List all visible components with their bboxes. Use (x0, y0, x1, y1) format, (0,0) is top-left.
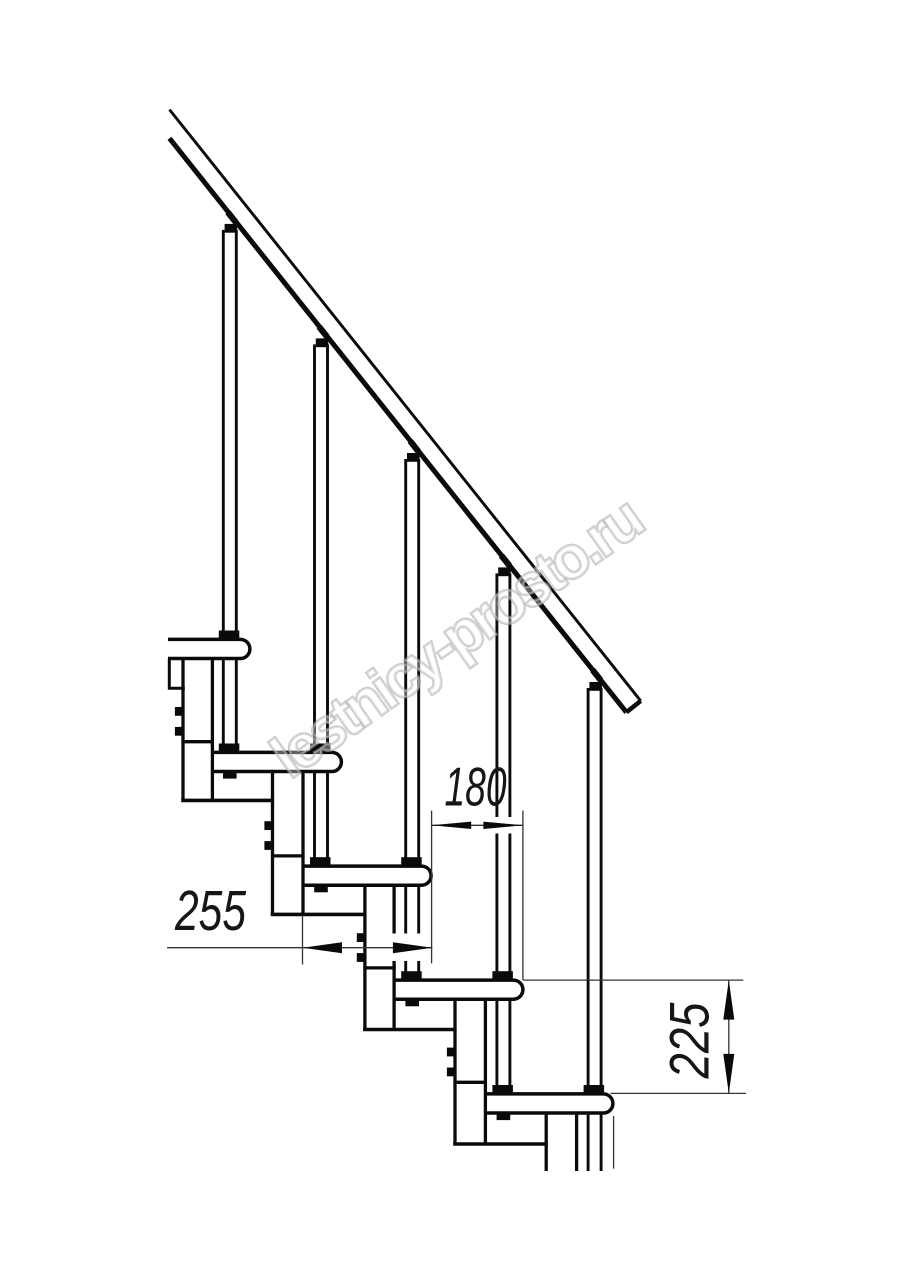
svg-text:225: 225 (658, 1002, 721, 1080)
svg-text:255: 255 (174, 879, 246, 943)
svg-text:180: 180 (445, 756, 507, 818)
